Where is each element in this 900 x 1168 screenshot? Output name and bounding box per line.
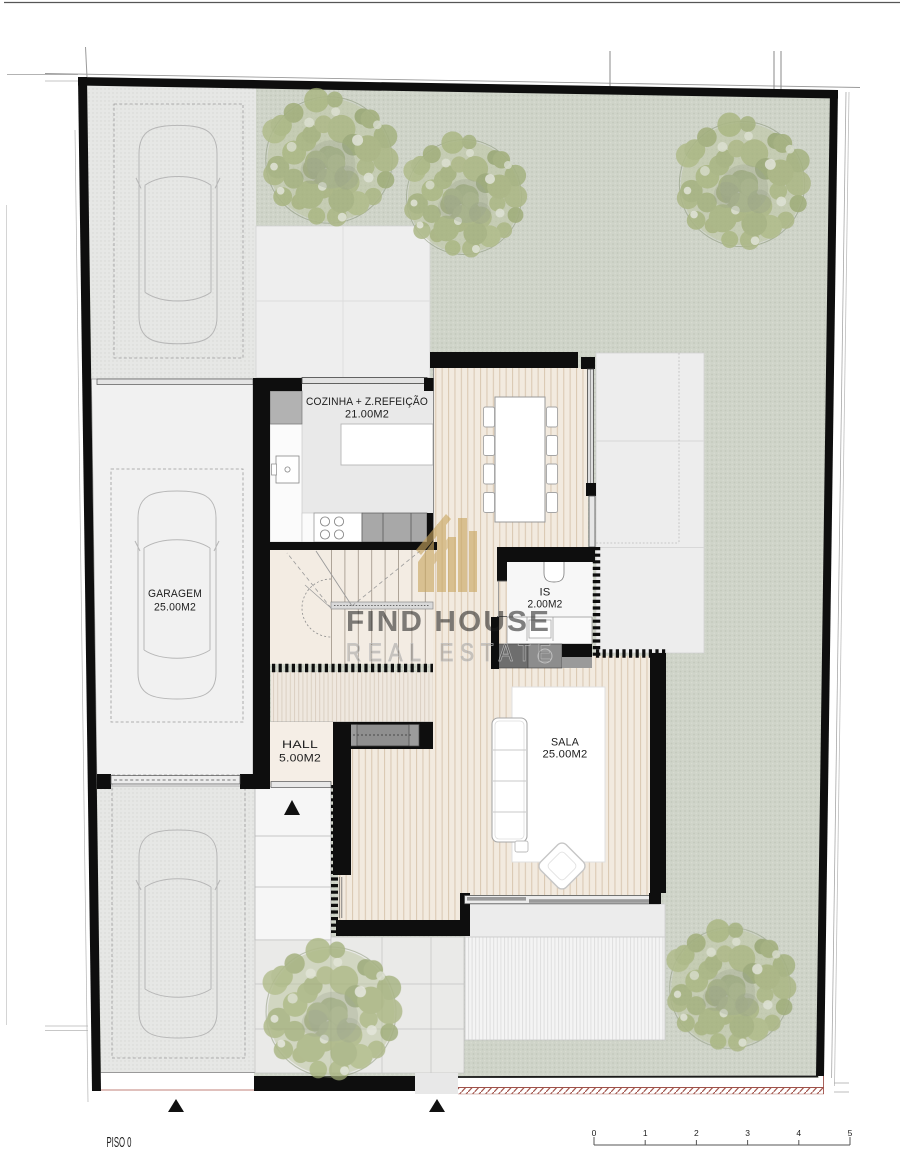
svg-text:HALL: HALL [282,739,318,751]
svg-text:25.00M2: 25.00M2 [543,749,588,761]
svg-text:2: 2 [694,1128,699,1138]
svg-text:COZINHA + Z.REFEIÇÃO: COZINHA + Z.REFEIÇÃO [306,395,428,408]
svg-text:5.00M2: 5.00M2 [279,753,321,765]
svg-text:2.00M2: 2.00M2 [528,599,563,611]
svg-text:0: 0 [592,1128,597,1138]
svg-text:4: 4 [796,1128,801,1138]
svg-text:3: 3 [745,1128,750,1138]
svg-text:IS: IS [539,587,550,599]
svg-text:SALA: SALA [551,737,579,749]
svg-text:FIND HOUSE: FIND HOUSE [346,606,551,638]
svg-text:PISO 0: PISO 0 [107,1134,132,1151]
svg-text:1: 1 [643,1128,648,1138]
svg-text:REAL ESTATE: REAL ESTATE [346,639,558,667]
svg-text:GARAGEM: GARAGEM [148,588,202,600]
svg-text:5: 5 [848,1128,853,1138]
svg-text:21.00M2: 21.00M2 [345,409,389,421]
svg-text:25.00M2: 25.00M2 [154,602,196,614]
